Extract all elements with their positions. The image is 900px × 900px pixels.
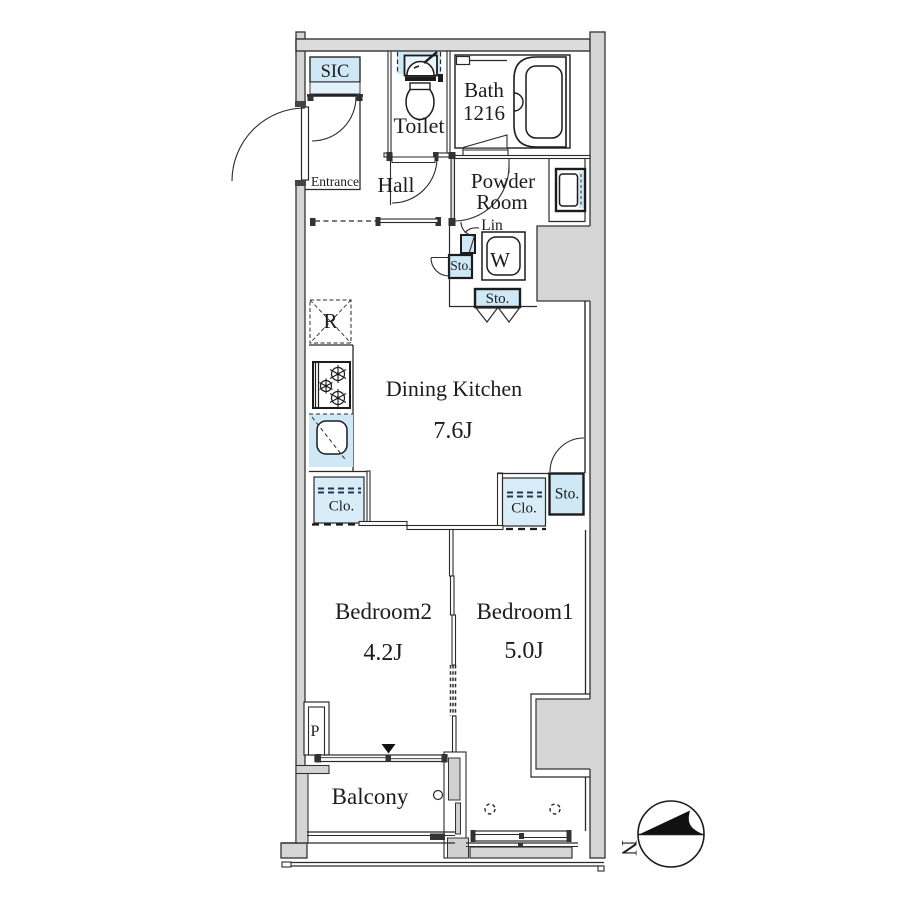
svg-text:Sto.: Sto. <box>555 486 580 503</box>
svg-text:Dining Kitchen: Dining Kitchen <box>386 376 522 401</box>
svg-text:Bath: Bath <box>464 78 504 102</box>
svg-text:5.0J: 5.0J <box>504 638 543 664</box>
svg-text:SIC: SIC <box>321 62 350 82</box>
svg-text:N: N <box>617 840 642 856</box>
svg-text:4.2J: 4.2J <box>363 640 402 666</box>
svg-text:W: W <box>490 248 510 272</box>
svg-text:Bedroom1: Bedroom1 <box>476 599 573 624</box>
svg-text:Sto.: Sto. <box>486 291 510 307</box>
svg-text:Hall: Hall <box>377 173 414 197</box>
svg-text:Toilet: Toilet <box>393 113 444 138</box>
svg-text:1216: 1216 <box>463 101 505 125</box>
svg-text:P: P <box>311 723 320 740</box>
svg-text:Balcony: Balcony <box>332 784 409 809</box>
svg-text:Room: Room <box>476 190 527 214</box>
svg-text:7.6J: 7.6J <box>433 418 472 444</box>
svg-text:Sto.: Sto. <box>450 258 471 273</box>
svg-text:R: R <box>323 309 337 333</box>
svg-text:Bedroom2: Bedroom2 <box>335 599 432 624</box>
svg-text:Clo.: Clo. <box>511 501 536 517</box>
svg-text:Entrance: Entrance <box>311 174 359 189</box>
svg-text:Clo.: Clo. <box>329 499 354 515</box>
